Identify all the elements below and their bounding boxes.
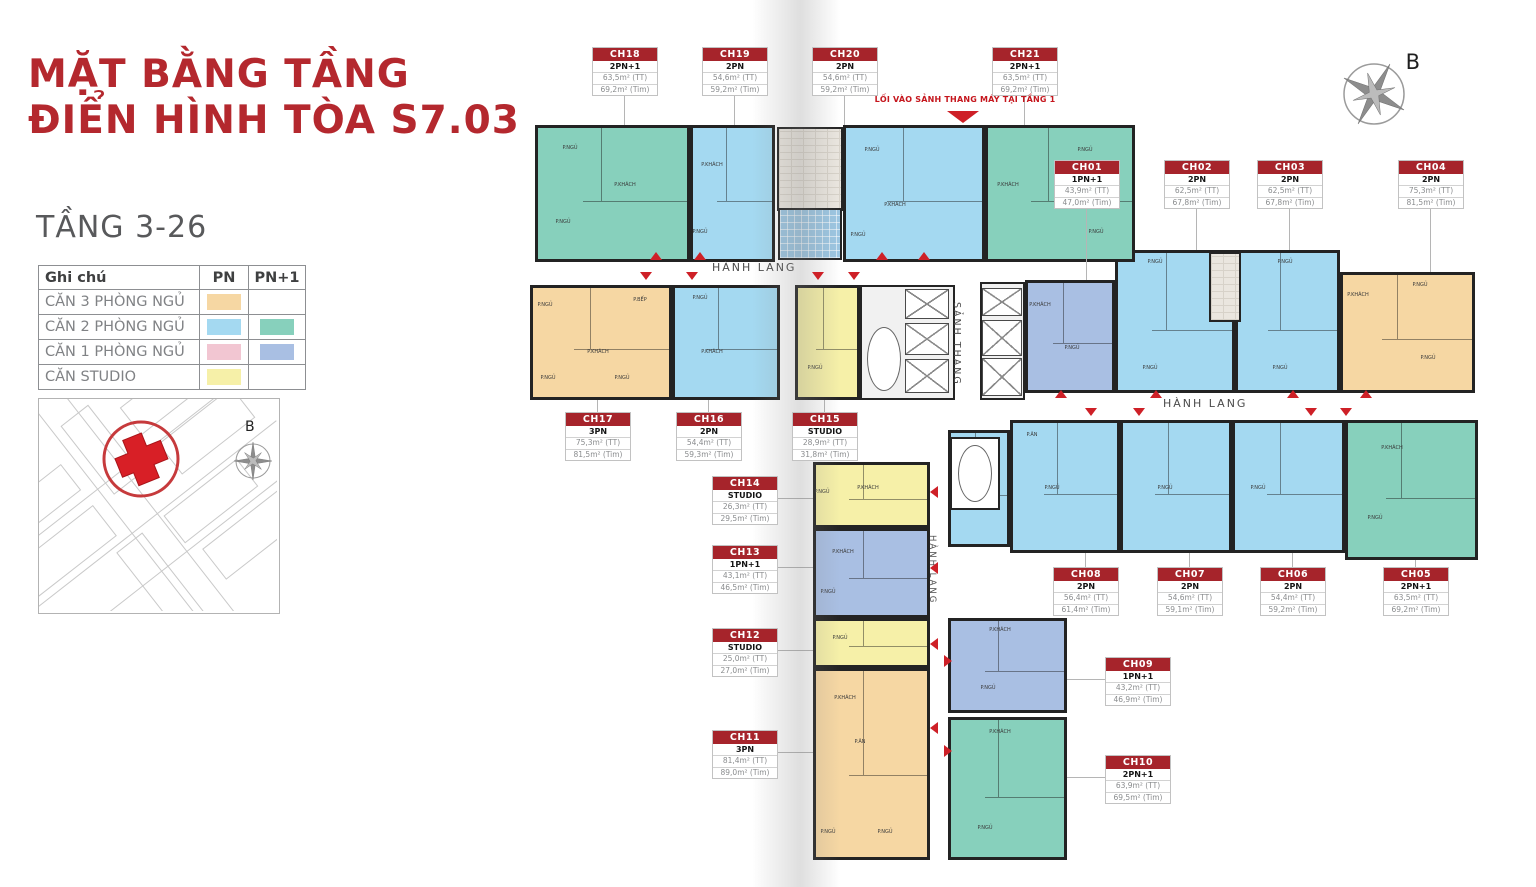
unit-area-tim: 59,2m² (Tim)	[703, 84, 767, 96]
unit-label-CH14: CH14STUDIO26,3m² (TT)29,5m² (Tim)	[712, 476, 778, 525]
unit-type: 2PN	[813, 61, 877, 72]
unit-area-tt: 63,5m² (TT)	[1384, 592, 1448, 604]
room-label: P.NGỦ	[555, 219, 570, 225]
entry-marker-icon	[1287, 390, 1299, 398]
room-label: P.NGỦ	[1420, 355, 1435, 361]
unit-type: STUDIO	[713, 490, 777, 501]
unit-label-CH04: CH042PN75,3m² (TT)81,5m² (Tim)	[1398, 160, 1464, 209]
unit-label-CH21: CH212PN+163,5m² (TT)69,2m² (Tim)	[992, 47, 1058, 96]
leader-line	[597, 400, 598, 412]
unit-area-tim: 27,0m² (Tim)	[713, 665, 777, 677]
room-label: P.KHÁCH	[701, 162, 722, 168]
unit-label-CH20: CH202PN54,6m² (TT)59,2m² (Tim)	[812, 47, 878, 96]
leader-line	[1415, 560, 1416, 567]
unit-area-tt: 54,4m² (TT)	[1261, 592, 1325, 604]
leader-line	[1289, 207, 1290, 250]
entry-marker-icon	[930, 638, 938, 650]
room-label: P.NGỦ	[980, 685, 995, 691]
unit-area-tt: 63,9m² (TT)	[1106, 780, 1170, 792]
unit-type: 1PN+1	[1106, 671, 1170, 682]
unit-area-tim: 67,8m² (Tim)	[1165, 197, 1229, 209]
unit-label-CH07: CH072PN54,6m² (TT)59,1m² (Tim)	[1157, 567, 1223, 616]
entry-marker-icon	[640, 272, 652, 280]
leader-line	[778, 752, 813, 753]
corridor-label: HÀNH LANG	[712, 261, 796, 274]
room-label: P.NGỦ	[1147, 259, 1162, 265]
unit-id: CH17	[566, 413, 630, 426]
room-label: P.NGỦ	[877, 829, 892, 835]
unit-label-CH16: CH162PN54,4m² (TT)59,3m² (Tim)	[676, 412, 742, 461]
unit-area-tt: 43,2m² (TT)	[1106, 682, 1170, 694]
unit-id: CH04	[1399, 161, 1463, 174]
entry-marker-icon	[1360, 390, 1372, 398]
room-label: P.NGỦ	[807, 365, 822, 371]
room-label: P.NGỦ	[537, 302, 552, 308]
room-label: P.NGỦ	[1077, 147, 1092, 153]
unit-area-tim: 59,3m² (Tim)	[677, 449, 741, 461]
unit-label-CH17: CH173PN75,3m² (TT)81,5m² (Tim)	[565, 412, 631, 461]
unit-area-tt: 54,6m² (TT)	[1158, 592, 1222, 604]
unit-area-CH03	[1235, 250, 1340, 393]
unit-id: CH10	[1106, 756, 1170, 769]
unit-label-CH15: CH15STUDIO28,9m² (TT)31,8m² (Tim)	[792, 412, 858, 461]
unit-id: CH02	[1165, 161, 1229, 174]
unit-label-CH03: CH032PN62,5m² (TT)67,8m² (Tim)	[1257, 160, 1323, 209]
leader-line	[1085, 553, 1086, 567]
leader-line	[778, 650, 813, 651]
entry-marker-icon	[930, 486, 938, 498]
entry-marker-icon	[930, 562, 938, 574]
unit-area-tt: 56,4m² (TT)	[1054, 592, 1118, 604]
room-label: P.KHÁCH	[884, 202, 905, 208]
unit-type: 2PN	[1261, 581, 1325, 592]
unit-area-tim: 89,0m² (Tim)	[713, 767, 777, 779]
unit-area-tim: 61,4m² (Tim)	[1054, 604, 1118, 616]
unit-label-CH12: CH12STUDIO25,0m² (TT)27,0m² (Tim)	[712, 628, 778, 677]
entry-marker-icon	[650, 252, 662, 260]
room-label: P.NGỦ	[1064, 345, 1079, 351]
leader-line	[708, 400, 709, 412]
entry-marker-icon	[1085, 408, 1097, 416]
unit-area-tt: 54,4m² (TT)	[677, 437, 741, 449]
unit-id: CH01	[1055, 161, 1119, 174]
room-label: P.KHÁCH	[989, 627, 1010, 633]
entry-marker-icon	[694, 252, 706, 260]
entry-marker-icon	[876, 252, 888, 260]
unit-area-tim: 59,2m² (Tim)	[1261, 604, 1325, 616]
unit-type: 2PN+1	[993, 61, 1057, 72]
unit-type: 2PN	[1054, 581, 1118, 592]
entrance-note: LỐI VÀO SẢNH THANG MÁY TẠI TẦNG 1	[865, 95, 1065, 104]
unit-area-tt: 81,4m² (TT)	[713, 755, 777, 767]
room-label: P.ĂN	[1027, 432, 1038, 438]
unit-type: 2PN+1	[1384, 581, 1448, 592]
unit-label-CH01: CH011PN+143,9m² (TT)47,0m² (Tim)	[1054, 160, 1120, 209]
room-label: P.NGỦ	[820, 829, 835, 835]
unit-label-CH06: CH062PN54,4m² (TT)59,2m² (Tim)	[1260, 567, 1326, 616]
room-label: P.KHÁCH	[614, 182, 635, 188]
unit-label-CH19: CH192PN54,6m² (TT)59,2m² (Tim)	[702, 47, 768, 96]
unit-id: CH21	[993, 48, 1057, 61]
elevator-shaft-icon	[905, 323, 949, 355]
entry-marker-icon	[812, 272, 824, 280]
room-label: P.KHÁCH	[1381, 445, 1402, 451]
unit-area-CH15	[795, 285, 860, 400]
unit-area-tim: 67,8m² (Tim)	[1258, 197, 1322, 209]
room-label: P.KHÁCH	[1347, 292, 1368, 298]
room-label: P.NGỦ	[1142, 365, 1157, 371]
unit-type: 2PN+1	[593, 61, 657, 72]
unit-area-tim: 69,5m² (Tim)	[1106, 792, 1170, 804]
unit-type: 2PN	[1165, 174, 1229, 185]
unit-area-tim: 69,2m² (Tim)	[1384, 604, 1448, 616]
room-label: P.ĂN	[855, 739, 866, 745]
room-label: P.NGỦ	[614, 375, 629, 381]
room-label: P.BẾP	[633, 297, 646, 303]
leader-line	[734, 94, 735, 125]
unit-area-tt: 75,3m² (TT)	[1399, 185, 1463, 197]
entry-marker-icon	[944, 745, 952, 757]
room-label: P.NGỦ	[1088, 229, 1103, 235]
unit-id: CH03	[1258, 161, 1322, 174]
room-label: P.NGỦ	[1272, 365, 1287, 371]
room-label: P.KHÁCH	[989, 729, 1010, 735]
room-label: P.NGỦ	[540, 375, 555, 381]
leader-line	[1430, 207, 1431, 272]
elevator-shaft-icon	[905, 359, 949, 393]
room-label: P.NGỦ	[1250, 485, 1265, 491]
unit-type: 2PN	[677, 426, 741, 437]
unit-area-tt: 62,5m² (TT)	[1165, 185, 1229, 197]
room-label: P.NGỦ	[1367, 515, 1382, 521]
floor-plan-canvas: HÀNH LANGSẢNH THANGHÀNH LANGHÀNH LANGCH0…	[0, 0, 1536, 887]
lift-lobby	[778, 208, 842, 260]
room-label: P.KHÁCH	[701, 349, 722, 355]
unit-id: CH18	[593, 48, 657, 61]
unit-area-tim: 59,2m² (Tim)	[813, 84, 877, 96]
unit-area-CH19	[690, 125, 775, 262]
corridor-label: SẢNH THANG	[951, 302, 962, 386]
leader-line	[778, 567, 813, 568]
unit-id: CH08	[1054, 568, 1118, 581]
unit-area-tt: 43,9m² (TT)	[1055, 185, 1119, 197]
unit-area-CH08	[1010, 420, 1120, 553]
leader-line	[1067, 679, 1105, 680]
room-label: P.KHÁCH	[832, 549, 853, 555]
unit-area-CH13	[813, 528, 930, 618]
unit-label-CH18: CH182PN+163,5m² (TT)69,2m² (Tim)	[592, 47, 658, 96]
unit-type: 3PN	[566, 426, 630, 437]
unit-area-tt: 54,6m² (TT)	[703, 72, 767, 84]
elevator-core	[777, 127, 843, 211]
unit-type: STUDIO	[713, 642, 777, 653]
unit-type: 1PN+1	[1055, 174, 1119, 185]
entry-marker-icon	[1340, 408, 1352, 416]
room-label: P.KHÁCH	[997, 182, 1018, 188]
room-label: P.NGỦ	[814, 489, 829, 495]
unit-type: 2PN+1	[1106, 769, 1170, 780]
room-label: P.NGỦ	[832, 635, 847, 641]
unit-label-CH09: CH091PN+143,2m² (TT)46,9m² (Tim)	[1105, 657, 1171, 706]
entry-marker-icon	[1150, 390, 1162, 398]
unit-id: CH16	[677, 413, 741, 426]
unit-type: 2PN	[1258, 174, 1322, 185]
unit-area-tim: 47,0m² (Tim)	[1055, 197, 1119, 209]
unit-label-CH10: CH102PN+163,9m² (TT)69,5m² (Tim)	[1105, 755, 1171, 804]
room-label: P.NGỦ	[1277, 259, 1292, 265]
unit-area-tim: 46,5m² (Tim)	[713, 582, 777, 594]
elevator-shaft-icon	[982, 358, 1022, 396]
unit-label-CH13: CH131PN+143,1m² (TT)46,5m² (Tim)	[712, 545, 778, 594]
unit-id: CH19	[703, 48, 767, 61]
unit-area-tt: 28,9m² (TT)	[793, 437, 857, 449]
unit-area-tim: 46,9m² (Tim)	[1106, 694, 1170, 706]
unit-area-CH14	[813, 462, 930, 528]
unit-label-CH08: CH082PN56,4m² (TT)61,4m² (Tim)	[1053, 567, 1119, 616]
unit-type: 2PN	[1158, 581, 1222, 592]
unit-area-CH01	[1025, 280, 1115, 393]
unit-label-CH05: CH052PN+163,5m² (TT)69,2m² (Tim)	[1383, 567, 1449, 616]
unit-area-CH18	[535, 125, 690, 262]
unit-label-CH11: CH113PN81,4m² (TT)89,0m² (Tim)	[712, 730, 778, 779]
unit-area-tt: 75,3m² (TT)	[566, 437, 630, 449]
unit-area-tim: 59,1m² (Tim)	[1158, 604, 1222, 616]
unit-id: CH09	[1106, 658, 1170, 671]
unit-area-tim: 29,5m² (Tim)	[713, 513, 777, 525]
unit-area-CH10	[948, 717, 1067, 860]
leader-line	[1086, 207, 1087, 280]
unit-type: 1PN+1	[713, 559, 777, 570]
unit-id: CH14	[713, 477, 777, 490]
unit-area-tt: 43,1m² (TT)	[713, 570, 777, 582]
unit-area-CH20	[843, 125, 985, 262]
room-label: P.NGỦ	[977, 825, 992, 831]
unit-type: 3PN	[713, 744, 777, 755]
elevator-shaft-icon	[982, 320, 1022, 356]
unit-area-tim: 31,8m² (Tim)	[793, 449, 857, 461]
leader-line	[1196, 207, 1197, 250]
entry-marker-icon	[918, 252, 930, 260]
room-label: P.KHÁCH	[587, 349, 608, 355]
room-label: P.KHÁCH	[1029, 302, 1050, 308]
stair-oval-icon	[867, 327, 901, 391]
unit-id: CH06	[1261, 568, 1325, 581]
unit-id: CH07	[1158, 568, 1222, 581]
unit-id: CH13	[713, 546, 777, 559]
unit-area-tt: 63,5m² (TT)	[993, 72, 1057, 84]
entry-marker-icon	[930, 722, 938, 734]
room-label: P.NGỦ	[864, 147, 879, 153]
stair-oval-icon	[958, 445, 992, 502]
unit-area-CH06	[1232, 420, 1345, 553]
unit-label-CH02: CH022PN62,5m² (TT)67,8m² (Tim)	[1164, 160, 1230, 209]
unit-area-tt: 54,6m² (TT)	[813, 72, 877, 84]
unit-area-tt: 25,0m² (TT)	[713, 653, 777, 665]
unit-type: 2PN	[1399, 174, 1463, 185]
leader-line	[1189, 553, 1190, 567]
unit-type: 2PN	[703, 61, 767, 72]
unit-id: CH15	[793, 413, 857, 426]
unit-area-tt: 26,3m² (TT)	[713, 501, 777, 513]
entry-marker-icon	[686, 272, 698, 280]
unit-id: CH05	[1384, 568, 1448, 581]
unit-area-CH12	[813, 618, 930, 668]
room-label: P.NGỦ	[692, 295, 707, 301]
corridor-label: HÀNH LANG	[1163, 397, 1247, 410]
unit-area-tim: 81,5m² (Tim)	[566, 449, 630, 461]
leader-line	[824, 400, 825, 412]
leader-line	[1067, 777, 1105, 778]
unit-area-CH07	[1120, 420, 1232, 553]
unit-id: CH12	[713, 629, 777, 642]
unit-area-tim: 81,5m² (Tim)	[1399, 197, 1463, 209]
room-label: P.NGỦ	[562, 145, 577, 151]
room-label: P.KHÁCH	[857, 485, 878, 491]
room-label: P.NGỦ	[1044, 485, 1059, 491]
elevator-core	[1209, 252, 1241, 322]
room-label: P.NGỦ	[850, 232, 865, 238]
entry-marker-icon	[848, 272, 860, 280]
entry-marker-icon	[944, 655, 952, 667]
leader-line	[778, 498, 813, 499]
unit-area-tim: 69,2m² (Tim)	[993, 84, 1057, 96]
entrance-arrow-icon	[947, 111, 979, 123]
unit-id: CH20	[813, 48, 877, 61]
entry-marker-icon	[1305, 408, 1317, 416]
unit-area-tt: 62,5m² (TT)	[1258, 185, 1322, 197]
entry-marker-icon	[1055, 390, 1067, 398]
leader-line	[844, 94, 845, 125]
elevator-shaft-icon	[982, 288, 1022, 316]
room-label: P.NGỦ	[1412, 282, 1427, 288]
unit-area-tt: 63,5m² (TT)	[593, 72, 657, 84]
room-label: P.NGỦ	[820, 589, 835, 595]
room-label: P.KHÁCH	[834, 695, 855, 701]
elevator-shaft-icon	[905, 289, 949, 319]
leader-line	[1292, 553, 1293, 567]
leader-line	[624, 94, 625, 125]
room-label: P.NGỦ	[692, 229, 707, 235]
entry-marker-icon	[1133, 408, 1145, 416]
unit-area-tim: 69,2m² (Tim)	[593, 84, 657, 96]
unit-area-CH04	[1340, 272, 1475, 393]
room-label: P.NGỦ	[1157, 485, 1172, 491]
unit-type: STUDIO	[793, 426, 857, 437]
unit-id: CH11	[713, 731, 777, 744]
unit-area-CH05	[1345, 420, 1478, 560]
unit-area-CH16	[672, 285, 780, 400]
